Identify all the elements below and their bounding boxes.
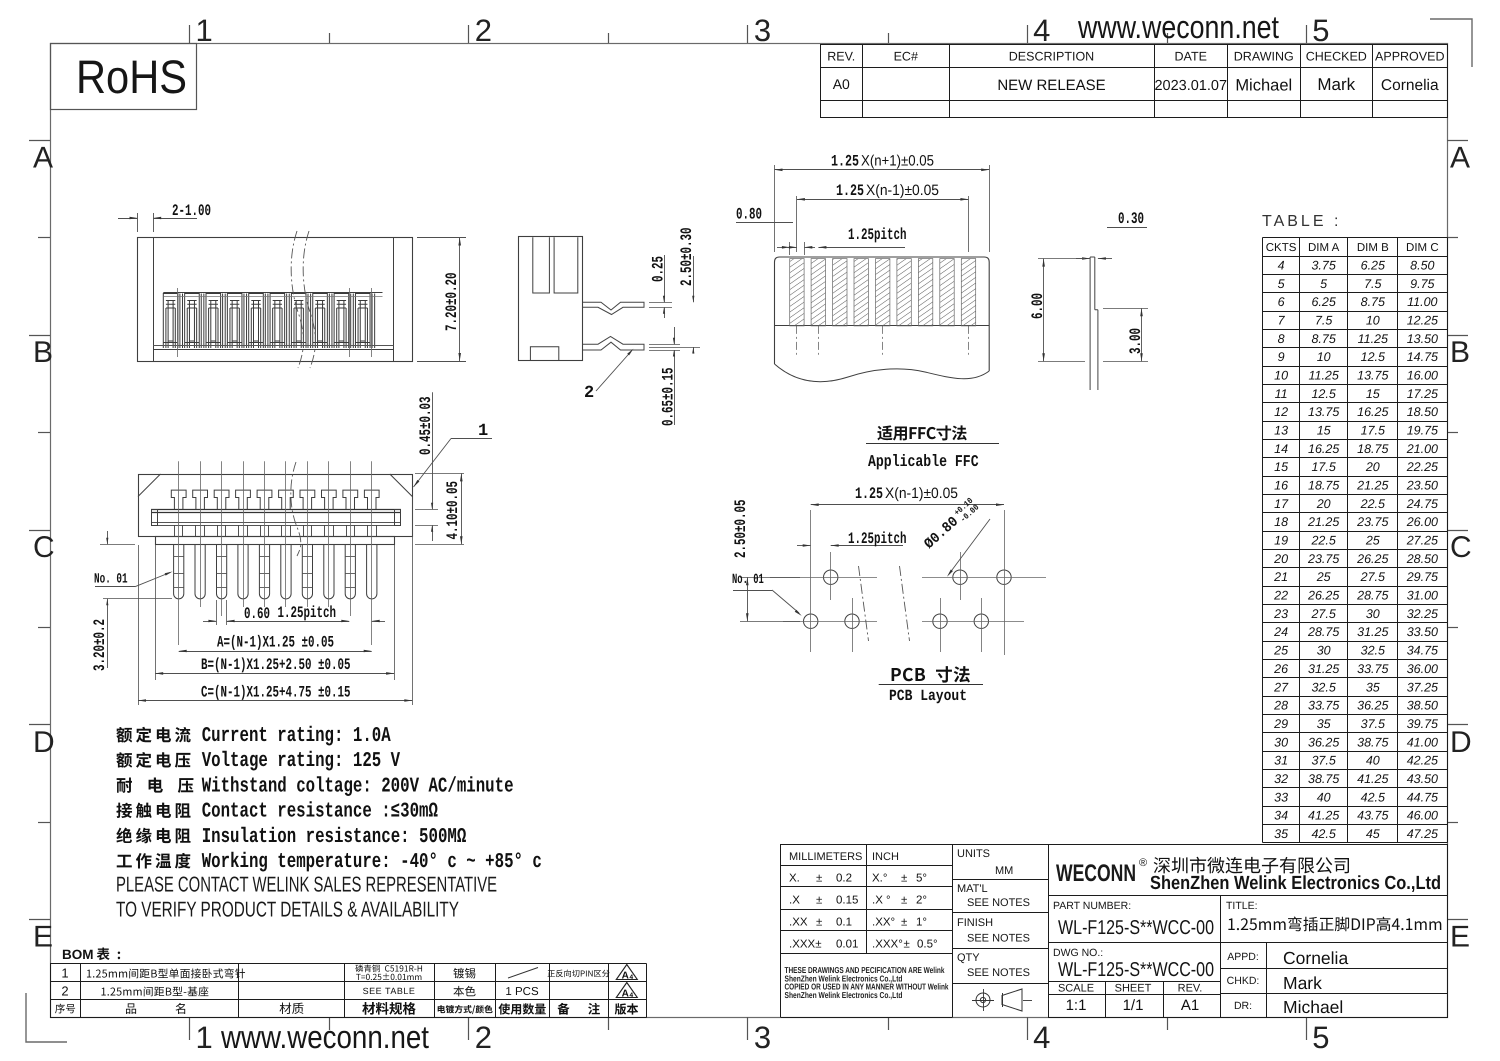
svg-text:17.5: 17.5 (1361, 424, 1385, 438)
svg-text:8.75: 8.75 (1361, 295, 1385, 309)
svg-text:26: 26 (1273, 662, 1288, 676)
svg-text:41.00: 41.00 (1407, 735, 1438, 749)
svg-text:30: 30 (1274, 735, 1288, 749)
svg-text:23.75: 23.75 (1356, 515, 1388, 529)
svg-text:34.75: 34.75 (1407, 644, 1438, 658)
svg-text:22.5: 22.5 (1360, 497, 1385, 511)
svg-text:.XX: .XX (789, 917, 808, 929)
svg-text:RoHS: RoHS (76, 50, 187, 103)
svg-text:WL-F125-S**WCC-00: WL-F125-S**WCC-00 (1058, 959, 1214, 981)
svg-text:Withstand coltage: 200V AC/min: Withstand coltage: 200V AC/minute (202, 775, 514, 798)
svg-text:0.60: 0.60 (244, 605, 270, 623)
svg-text:BOM: BOM (62, 947, 94, 962)
svg-text:43.75: 43.75 (1357, 809, 1388, 823)
svg-text:7: 7 (1278, 314, 1286, 328)
svg-text:Mark: Mark (1283, 973, 1322, 993)
svg-text:2: 2 (475, 1020, 492, 1055)
svg-text:7.5: 7.5 (1315, 314, 1332, 328)
svg-text:27.5: 27.5 (1360, 570, 1385, 584)
svg-text:10: 10 (1366, 314, 1380, 328)
svg-text:6.00: 6.00 (1029, 293, 1047, 319)
svg-text:DIM C: DIM C (1406, 242, 1439, 254)
svg-text:0.25: 0.25 (650, 256, 668, 282)
svg-text:35: 35 (1366, 680, 1380, 694)
svg-text:31.25: 31.25 (1357, 625, 1388, 639)
svg-text:www.weconn.net: www.weconn.net (1077, 9, 1279, 45)
svg-text:38.50: 38.50 (1407, 699, 1438, 713)
svg-text:DESCRIPTION: DESCRIPTION (1009, 50, 1094, 64)
svg-text:31.25: 31.25 (1308, 662, 1339, 676)
svg-text:24.75: 24.75 (1406, 497, 1438, 511)
svg-text:SCALE: SCALE (1058, 983, 1094, 995)
svg-text:2: 2 (475, 13, 492, 48)
svg-text:1:1: 1:1 (1066, 997, 1087, 1014)
svg-text:40: 40 (1366, 754, 1380, 768)
svg-text:X.°: X.° (872, 873, 887, 885)
svg-text:MILLIMETERS: MILLIMETERS (789, 851, 862, 863)
svg-text:1.25pitch: 1.25pitch (848, 226, 907, 244)
svg-text:28: 28 (1273, 699, 1288, 713)
svg-text:40: 40 (1317, 790, 1331, 804)
svg-text:18.75: 18.75 (1308, 479, 1339, 493)
svg-text:SHEET: SHEET (1115, 983, 1152, 995)
svg-text:25: 25 (1365, 534, 1380, 548)
svg-text:5°: 5° (916, 873, 927, 885)
svg-text:45: 45 (1366, 827, 1380, 841)
svg-text:5: 5 (1312, 13, 1329, 48)
svg-text:E: E (33, 921, 53, 954)
svg-text:CHECKED: CHECKED (1306, 50, 1367, 64)
svg-text:SEE NOTES: SEE NOTES (967, 897, 1030, 909)
svg-text:42.25: 42.25 (1407, 754, 1438, 768)
svg-text:1: 1 (478, 422, 488, 441)
svg-text:37.5: 37.5 (1361, 717, 1385, 731)
svg-text:33.75: 33.75 (1357, 662, 1388, 676)
svg-text:Insulation resistance: 500MΩ: Insulation resistance: 500MΩ (202, 826, 467, 849)
svg-text:36.00: 36.00 (1407, 662, 1438, 676)
svg-text:28.75: 28.75 (1356, 589, 1388, 603)
svg-text:13: 13 (1274, 424, 1288, 438)
svg-text:.X: .X (789, 895, 800, 907)
svg-text:16.25: 16.25 (1308, 442, 1339, 456)
svg-text:39.75: 39.75 (1407, 717, 1438, 731)
svg-text:22: 22 (1273, 589, 1288, 603)
svg-text:10: 10 (1274, 369, 1288, 383)
svg-text:EC#: EC# (894, 50, 918, 64)
svg-text:27: 27 (1273, 680, 1289, 694)
svg-text:11: 11 (1275, 387, 1288, 401)
svg-text:4: 4 (1278, 258, 1285, 272)
svg-text:35: 35 (1274, 827, 1288, 841)
svg-text:13.50: 13.50 (1407, 332, 1438, 346)
svg-text:25: 25 (1273, 644, 1288, 658)
svg-text:0.45±0.03: 0.45±0.03 (417, 397, 435, 456)
svg-text:2: 2 (584, 384, 594, 403)
svg-text:FINISH: FINISH (957, 917, 993, 929)
svg-text:38.75: 38.75 (1357, 735, 1388, 749)
svg-text:3: 3 (754, 13, 771, 48)
svg-text:9.75: 9.75 (1410, 277, 1434, 291)
svg-text:19.75: 19.75 (1407, 424, 1438, 438)
svg-text:28.75: 28.75 (1307, 625, 1339, 639)
svg-text:27.25: 27.25 (1406, 534, 1438, 548)
svg-text:31: 31 (1274, 754, 1288, 768)
svg-text:33: 33 (1274, 790, 1288, 804)
svg-text:5: 5 (1320, 277, 1327, 291)
svg-text:4: 4 (1033, 13, 1050, 48)
svg-text:1.25: 1.25 (855, 485, 883, 503)
svg-text:B: B (1450, 336, 1470, 369)
svg-text:D: D (1450, 726, 1472, 759)
svg-text:A1: A1 (1181, 997, 1199, 1014)
svg-text:1 PCS: 1 PCS (505, 986, 539, 998)
svg-text:16.25: 16.25 (1357, 405, 1388, 419)
svg-text:±: ± (901, 895, 907, 907)
svg-text:1: 1 (196, 13, 213, 48)
svg-text:REV.: REV. (827, 50, 855, 64)
svg-text:PCB Layout: PCB Layout (889, 687, 967, 705)
svg-text:Working temperature: -40° c ~: Working temperature: -40° c ~ +85° c (202, 851, 542, 874)
svg-text:CKTS: CKTS (1266, 242, 1297, 254)
svg-text:15: 15 (1274, 460, 1288, 474)
svg-text:SEE NOTES: SEE NOTES (967, 967, 1030, 979)
svg-text:4: 4 (629, 992, 633, 999)
svg-text:Contact resistance :≤30mΩ: Contact resistance :≤30mΩ (202, 801, 439, 824)
svg-text:TABLE :: TABLE : (1262, 213, 1341, 230)
svg-text:1: 1 (61, 966, 68, 981)
svg-text:5: 5 (1278, 277, 1285, 291)
svg-text:17.5: 17.5 (1311, 460, 1335, 474)
svg-text:Michael: Michael (1283, 997, 1343, 1017)
svg-text:30: 30 (1366, 607, 1380, 621)
svg-text:±: ± (901, 917, 907, 929)
svg-text:3.75: 3.75 (1311, 258, 1335, 272)
svg-text:12.5: 12.5 (1311, 387, 1335, 401)
svg-text:34: 34 (1274, 809, 1288, 823)
svg-text:3: 3 (754, 1020, 771, 1055)
svg-text:±: ± (816, 917, 822, 929)
svg-text:33.75: 33.75 (1308, 699, 1339, 713)
svg-text:2.50±0.05: 2.50±0.05 (732, 500, 750, 559)
svg-text:DATE: DATE (1175, 50, 1207, 64)
svg-text:26.00: 26.00 (1406, 515, 1438, 529)
svg-text:20: 20 (1365, 460, 1380, 474)
svg-text:1.25pitch: 1.25pitch (848, 530, 907, 548)
svg-text:X(n-1)±0.05: X(n-1)±0.05 (866, 182, 939, 199)
svg-text:33.50: 33.50 (1407, 625, 1438, 639)
svg-text:6.25: 6.25 (1311, 295, 1335, 309)
svg-text:A=(N-1)X1.25 ±0.05: A=(N-1)X1.25 ±0.05 (217, 634, 334, 652)
svg-text:Applicable FFC: Applicable FFC (868, 452, 979, 471)
svg-text:10: 10 (1317, 350, 1331, 364)
svg-text:32: 32 (1274, 772, 1288, 786)
svg-text:37.5: 37.5 (1311, 754, 1335, 768)
svg-text:46.00: 46.00 (1407, 809, 1438, 823)
svg-text:23: 23 (1273, 607, 1288, 621)
svg-text:D: D (33, 726, 55, 759)
svg-text:2: 2 (61, 984, 68, 999)
svg-text:PLEASE CONTACT WELINK SALES RE: PLEASE CONTACT WELINK SALES REPRESENTATI… (116, 873, 497, 897)
svg-text:2023.01.07: 2023.01.07 (1154, 78, 1227, 94)
svg-text:1/1: 1/1 (1123, 997, 1144, 1014)
svg-text:Ø0.80: Ø0.80 (922, 514, 962, 553)
svg-text:ShenZhen Welink Electronics Co: ShenZhen Welink Electronics Co.,Ltd (785, 990, 903, 1000)
svg-text:ShenZhen Welink Electronics Co: ShenZhen Welink Electronics Co.,Ltd (1150, 873, 1441, 894)
svg-text:TITLE:: TITLE: (1226, 900, 1258, 912)
svg-text:23.75: 23.75 (1307, 552, 1339, 566)
svg-text:7.5: 7.5 (1364, 277, 1381, 291)
svg-text:Current rating: 1.0A: Current rating: 1.0A (202, 725, 391, 748)
svg-text:18.75: 18.75 (1357, 442, 1388, 456)
svg-text:3.20±0.2: 3.20±0.2 (91, 619, 109, 671)
svg-text:14: 14 (1274, 442, 1288, 456)
svg-text:28.50: 28.50 (1406, 552, 1438, 566)
svg-text:A: A (622, 989, 629, 1000)
svg-text:41.25: 41.25 (1308, 809, 1339, 823)
svg-text:42.5: 42.5 (1311, 827, 1335, 841)
svg-text:Mark: Mark (1317, 75, 1355, 94)
svg-text:2-1.00: 2-1.00 (172, 202, 211, 220)
svg-text:0.1: 0.1 (836, 917, 852, 929)
svg-text:18: 18 (1274, 515, 1288, 529)
svg-text:27.5: 27.5 (1310, 607, 1335, 621)
svg-text:.XXX±: .XXX± (789, 939, 822, 951)
svg-text:±: ± (816, 873, 822, 885)
svg-text:0.5°: 0.5° (917, 939, 938, 951)
svg-text:DR:: DR: (1234, 1000, 1252, 1012)
svg-text:MAT'L: MAT'L (957, 883, 988, 895)
svg-text:TO VERIFY PRODUCT DETAILS & AV: TO VERIFY PRODUCT DETAILS & AVAILABILITY (116, 898, 459, 922)
svg-text:8.50: 8.50 (1410, 258, 1434, 272)
svg-text:1.25pitch: 1.25pitch (278, 604, 337, 622)
svg-text:6: 6 (1278, 295, 1285, 309)
svg-text:16: 16 (1274, 479, 1288, 493)
svg-text:C: C (1450, 531, 1472, 564)
svg-text:17: 17 (1274, 497, 1289, 511)
svg-text:WL-F125-S**WCC-00: WL-F125-S**WCC-00 (1058, 917, 1214, 939)
svg-text:C=(N-1)X1.25+4.75 ±0.15: C=(N-1)X1.25+4.75 ±0.15 (201, 684, 351, 702)
svg-text:8.75: 8.75 (1311, 332, 1335, 346)
svg-text:19: 19 (1274, 534, 1288, 548)
svg-text:APPROVED: APPROVED (1375, 50, 1444, 64)
svg-text:3.00: 3.00 (1127, 328, 1145, 354)
svg-text:UNITS: UNITS (957, 848, 990, 860)
svg-text:DWG NO.:: DWG NO.: (1053, 947, 1103, 959)
svg-text:A: A (1450, 141, 1470, 174)
svg-text:±: ± (904, 939, 910, 951)
svg-text:0.30: 0.30 (1118, 210, 1144, 228)
svg-text:NEW RELEASE: NEW RELEASE (997, 77, 1105, 94)
svg-text:X.: X. (789, 873, 800, 885)
svg-text:9: 9 (1278, 350, 1285, 364)
svg-text:.X °: .X ° (872, 895, 891, 907)
svg-text:8: 8 (1278, 332, 1285, 346)
svg-text:A: A (33, 141, 53, 174)
svg-text:24: 24 (1273, 625, 1288, 639)
svg-text:32.5: 32.5 (1361, 644, 1385, 658)
svg-text:0.15: 0.15 (836, 895, 858, 907)
svg-text:36.25: 36.25 (1308, 735, 1339, 749)
svg-text:23.50: 23.50 (1406, 479, 1438, 493)
svg-text:SEE NOTES: SEE NOTES (967, 933, 1030, 945)
svg-text:47.25: 47.25 (1407, 827, 1438, 841)
svg-text:22.5: 22.5 (1310, 534, 1335, 548)
svg-text:36.25: 36.25 (1357, 699, 1388, 713)
svg-text:MM: MM (995, 865, 1013, 877)
svg-text:44.75: 44.75 (1407, 790, 1438, 804)
svg-text:11.00: 11.00 (1407, 295, 1437, 309)
svg-text:0.65±0.15: 0.65±0.15 (660, 368, 678, 427)
svg-text:4: 4 (1033, 1020, 1050, 1055)
svg-text:31.00: 31.00 (1407, 589, 1438, 603)
svg-text:12.5: 12.5 (1361, 350, 1385, 364)
svg-text:1°: 1° (916, 917, 927, 929)
svg-text:DIM B: DIM B (1357, 242, 1389, 254)
svg-text:15: 15 (1366, 387, 1380, 401)
svg-text:.XXX°: .XXX° (872, 939, 903, 951)
svg-text:SEE TABLE: SEE TABLE (363, 986, 416, 996)
svg-text:.XX°: .XX° (872, 917, 895, 929)
svg-text:A0: A0 (833, 76, 850, 92)
svg-text:11.25: 11.25 (1358, 332, 1388, 346)
svg-text:20: 20 (1273, 552, 1288, 566)
svg-text:±: ± (816, 895, 822, 907)
svg-text:13.75: 13.75 (1357, 369, 1388, 383)
svg-text:DIM A: DIM A (1308, 242, 1340, 254)
svg-text:14.75: 14.75 (1407, 350, 1438, 364)
svg-text:Cornelia: Cornelia (1283, 948, 1348, 968)
svg-text:B: B (33, 336, 53, 369)
svg-text:REV.: REV. (1178, 983, 1203, 995)
svg-text:38.75: 38.75 (1308, 772, 1339, 786)
svg-text:1: 1 (196, 1020, 213, 1055)
svg-text:B=(N-1)X1.25+2.50 ±0.05: B=(N-1)X1.25+2.50 ±0.05 (201, 656, 351, 674)
svg-text:X(n+1)±0.05: X(n+1)±0.05 (861, 153, 934, 170)
svg-text:E: E (1450, 921, 1470, 954)
svg-text:17.25: 17.25 (1407, 387, 1438, 401)
svg-text:16.00: 16.00 (1407, 369, 1438, 383)
svg-text:®: ® (1139, 857, 1147, 869)
svg-text:35: 35 (1317, 717, 1331, 731)
svg-text:No. 01: No. 01 (94, 572, 128, 588)
svg-text:37.25: 37.25 (1407, 680, 1438, 694)
svg-text:A: A (622, 971, 629, 982)
svg-text:2°: 2° (916, 895, 927, 907)
svg-text:PART NUMBER:: PART NUMBER: (1053, 900, 1131, 912)
svg-text:Voltage rating: 125 V: Voltage rating: 125 V (202, 750, 401, 773)
svg-text:12.25: 12.25 (1407, 314, 1438, 328)
svg-text:Michael: Michael (1235, 77, 1292, 95)
svg-text:32.25: 32.25 (1407, 607, 1438, 621)
svg-text:20: 20 (1316, 497, 1331, 511)
svg-text:30: 30 (1317, 644, 1331, 658)
svg-text:26.25: 26.25 (1307, 589, 1339, 603)
svg-text:11.25: 11.25 (1308, 369, 1338, 383)
svg-text:7.20±0.20: 7.20±0.20 (443, 273, 461, 332)
svg-text:1.25: 1.25 (831, 153, 859, 171)
svg-text:No. 01: No. 01 (732, 572, 764, 588)
svg-text:32.5: 32.5 (1311, 680, 1335, 694)
svg-text:APPD:: APPD: (1227, 951, 1259, 963)
svg-text:CHKD:: CHKD: (1227, 975, 1260, 987)
svg-text:18.50: 18.50 (1407, 405, 1438, 419)
svg-text:2.50±0.30: 2.50±0.30 (678, 228, 696, 287)
svg-text:12: 12 (1274, 405, 1288, 419)
svg-text:41.25: 41.25 (1357, 772, 1388, 786)
svg-text:QTY: QTY (957, 952, 980, 964)
svg-text:4: 4 (629, 974, 633, 981)
svg-text:4.10±0.05: 4.10±0.05 (444, 481, 462, 540)
svg-text:15: 15 (1317, 424, 1331, 438)
svg-text:5: 5 (1312, 1020, 1329, 1055)
svg-text:6.25: 6.25 (1361, 258, 1385, 272)
svg-text:www.weconn.net: www.weconn.net (220, 1019, 429, 1055)
svg-text:INCH: INCH (872, 851, 899, 863)
svg-text:1.25: 1.25 (836, 182, 864, 200)
svg-text:WECONN: WECONN (1056, 860, 1136, 887)
svg-text:DRAWING: DRAWING (1234, 50, 1294, 64)
svg-text:X(n-1)±0.05: X(n-1)±0.05 (885, 485, 958, 502)
svg-text:±: ± (901, 873, 907, 885)
svg-text:29.75: 29.75 (1406, 570, 1438, 584)
svg-text:13.75: 13.75 (1308, 405, 1339, 419)
svg-text:0.2: 0.2 (836, 873, 852, 885)
svg-text:21.25: 21.25 (1356, 479, 1388, 493)
svg-text:29: 29 (1273, 717, 1288, 731)
svg-text:21.00: 21.00 (1406, 442, 1438, 456)
svg-text:0.01: 0.01 (836, 939, 858, 951)
svg-text:25: 25 (1316, 570, 1331, 584)
svg-text:21: 21 (1273, 570, 1288, 584)
svg-text:0.80: 0.80 (736, 206, 762, 224)
svg-text:Cornelia: Cornelia (1381, 77, 1439, 94)
svg-text:C: C (33, 531, 55, 564)
svg-text:43.50: 43.50 (1407, 772, 1438, 786)
svg-text:22.25: 22.25 (1406, 460, 1438, 474)
svg-text:42.5: 42.5 (1361, 790, 1385, 804)
svg-text:26.25: 26.25 (1356, 552, 1388, 566)
svg-text:21.25: 21.25 (1307, 515, 1339, 529)
